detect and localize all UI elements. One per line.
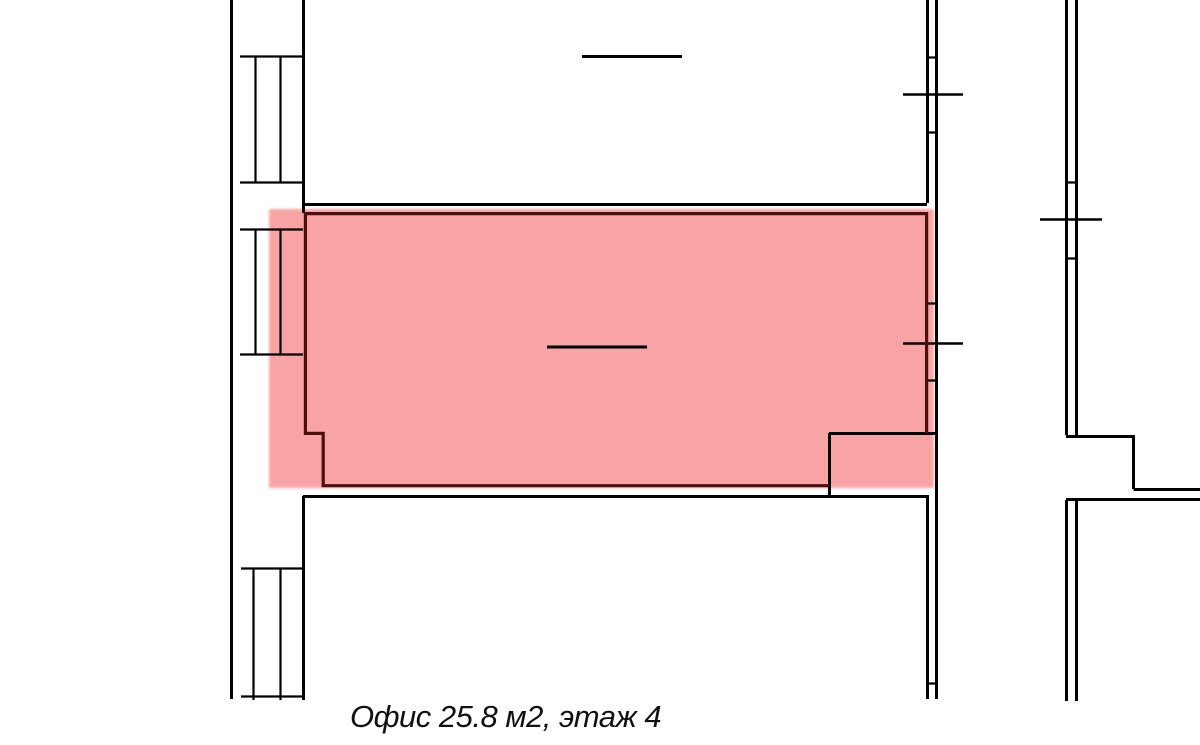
wall-column	[1066, 435, 1200, 500]
window-symbol	[240, 56, 303, 183]
window-symbol	[241, 568, 304, 700]
floor-plan-canvas: Офис 25.8 м2, этаж 4	[0, 0, 1200, 745]
floor-plan	[0, 0, 1200, 745]
room-highlight-fill	[269, 209, 934, 488]
room-caption: Офис 25.8 м2, этаж 4	[350, 699, 661, 735]
